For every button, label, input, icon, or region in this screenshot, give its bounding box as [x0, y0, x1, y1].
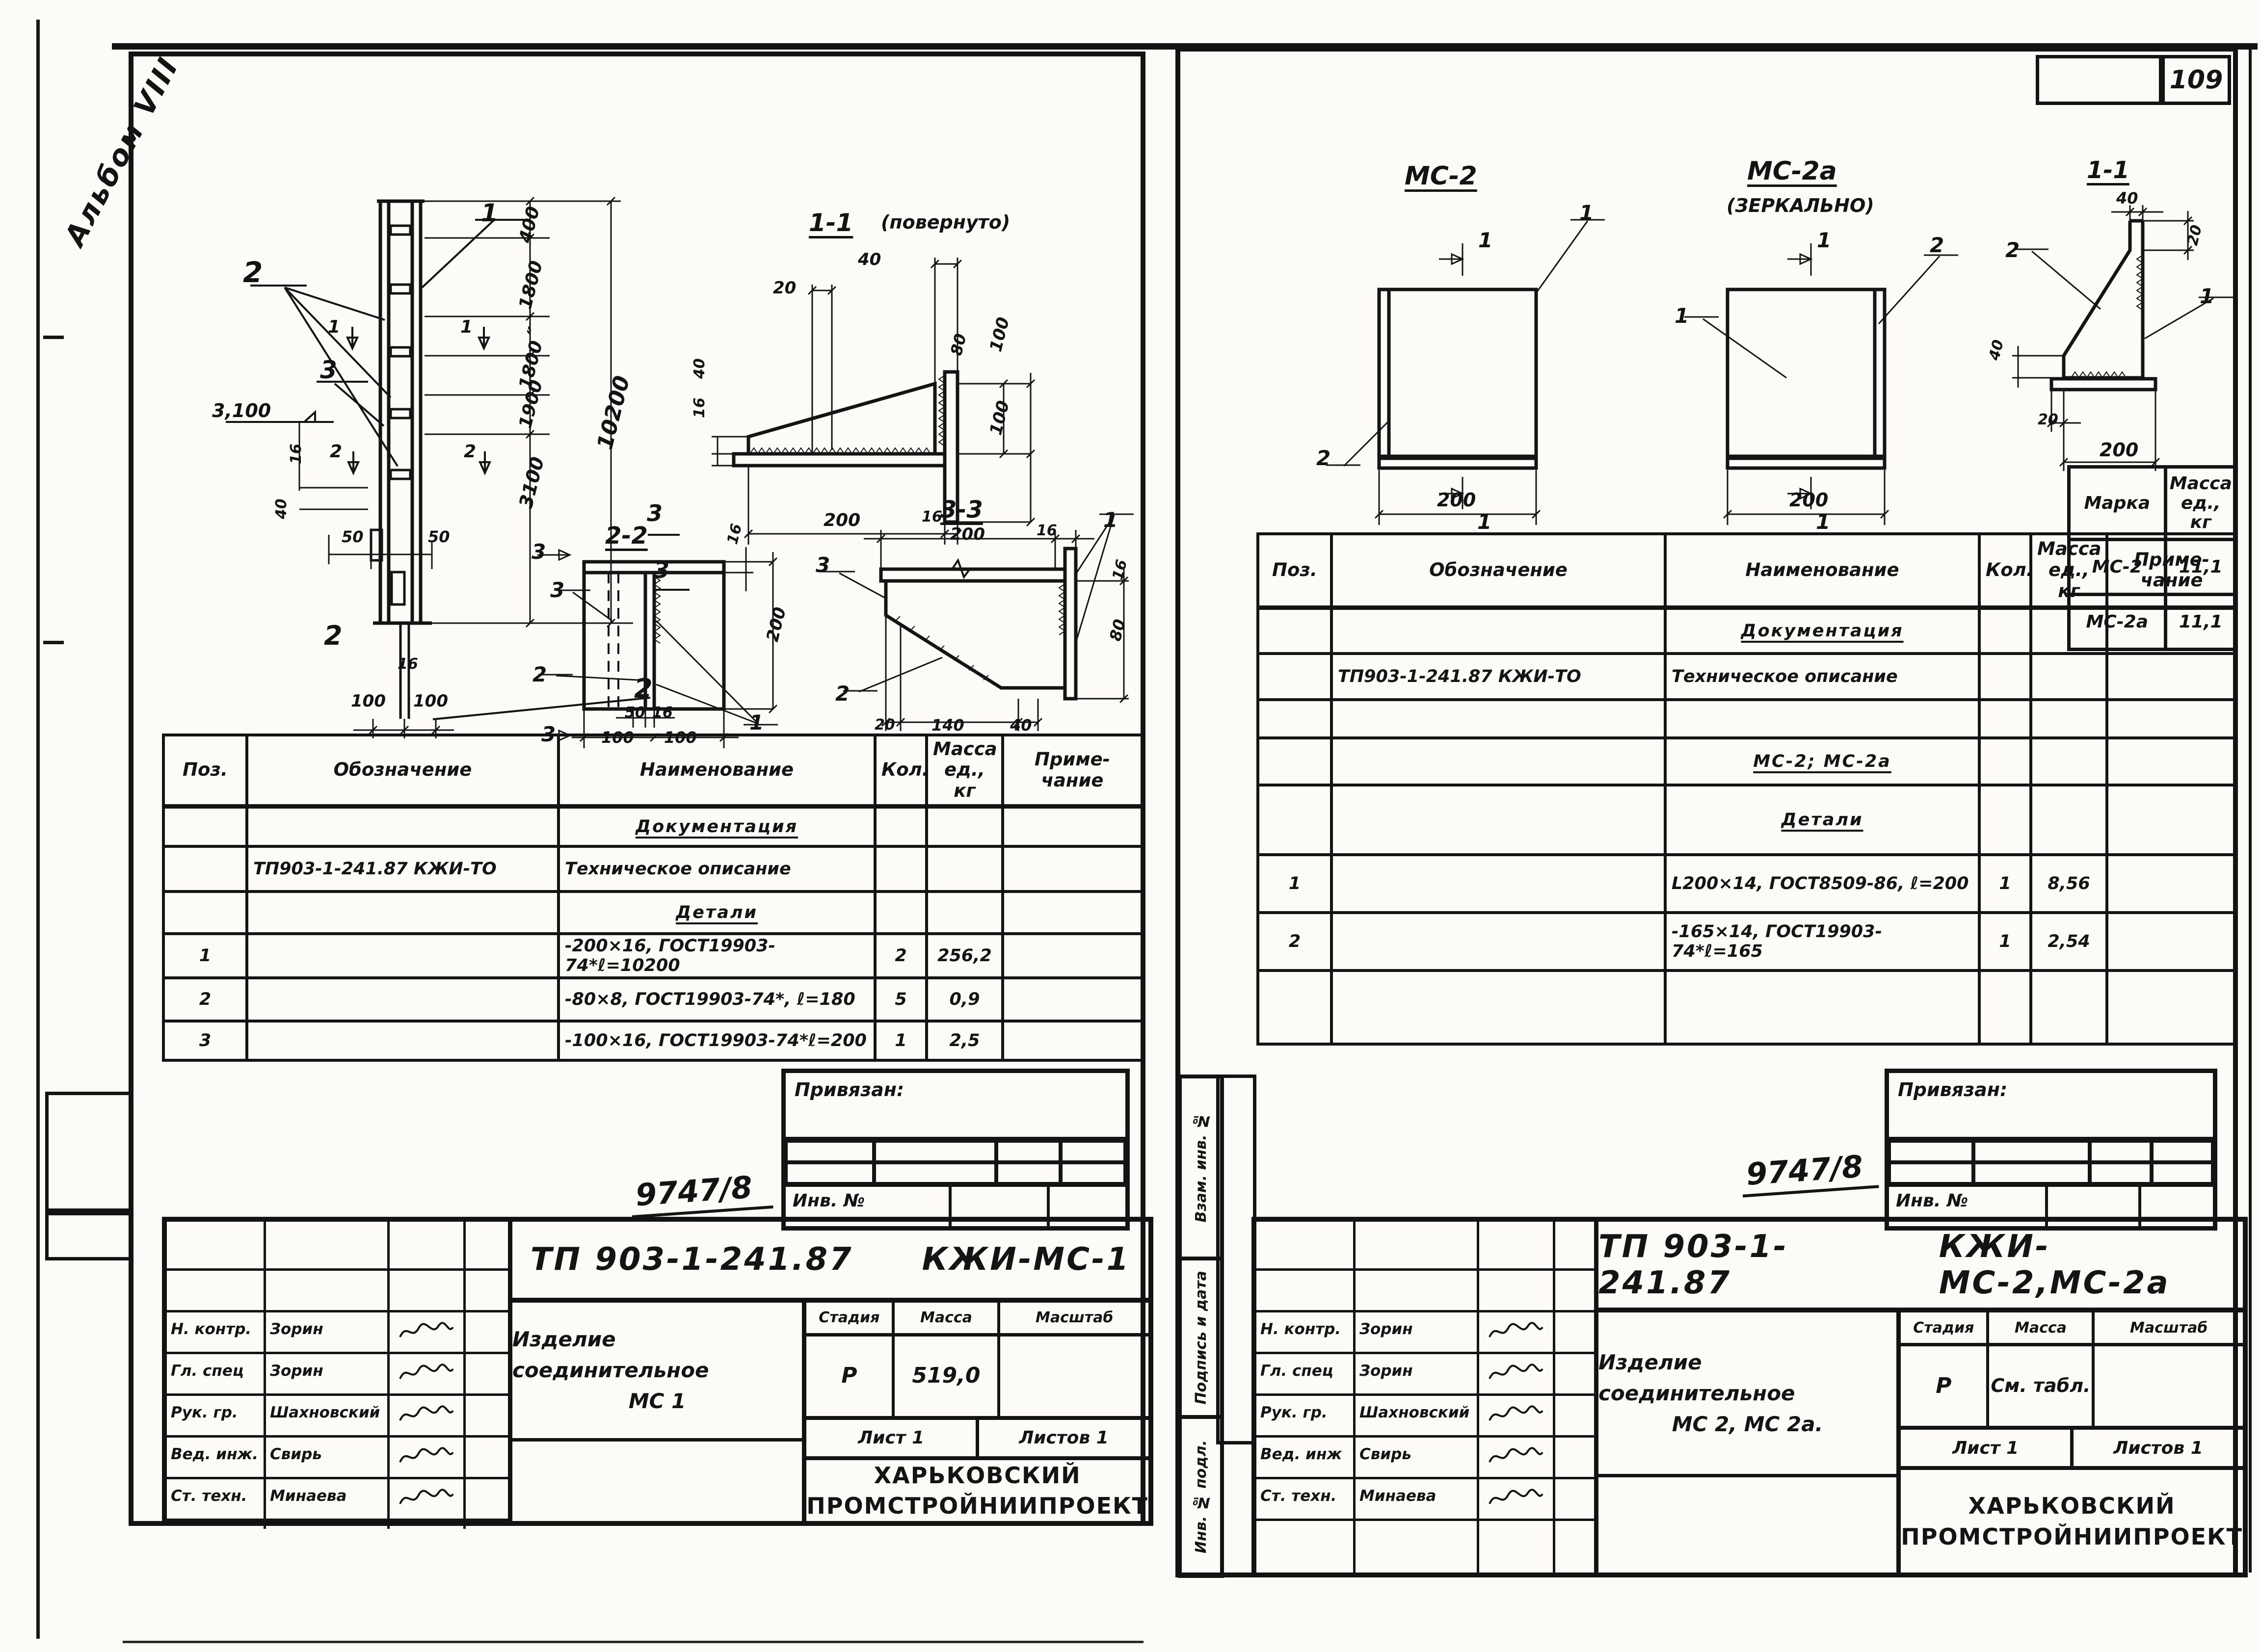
table-cell: Детали	[1665, 785, 1979, 855]
table-cell	[1003, 1021, 1142, 1060]
dim-label: 50	[428, 529, 450, 546]
staff-row: Н. контр.Зорин	[1256, 1312, 1594, 1354]
table-cell	[2107, 785, 2236, 855]
table-cell: 5	[875, 978, 927, 1021]
mass-value: См. табл.	[1989, 1346, 2095, 1426]
table-cell: 2	[875, 934, 927, 978]
binding-label: Привязан:	[786, 1073, 1125, 1141]
signature	[1487, 1321, 1545, 1343]
parts-table-left: Поз. Обозначение Наименование Кол. Масса…	[162, 734, 1144, 1062]
title-block-right: Н. контр.ЗоринГл. спецЗоринРук. гр.Шахно…	[1251, 1217, 2248, 1577]
stage-label: Стадия	[1901, 1312, 1989, 1343]
table-cell: 1	[1979, 913, 2031, 970]
table-cell	[1331, 700, 1665, 738]
table-cell: Техническое описание	[559, 846, 875, 892]
dim-label: 1	[749, 712, 764, 734]
dim-label: 3,100	[212, 401, 271, 421]
dim-label: 100	[351, 693, 386, 710]
table-cell	[1258, 785, 1331, 855]
table-cell: 2,5	[927, 1021, 1003, 1060]
dim-label: 3	[320, 357, 337, 383]
signature	[397, 1488, 456, 1510]
mass-value: 519,0	[895, 1337, 1000, 1416]
table-cell: 3	[163, 1021, 247, 1060]
title-block-left: Н. контр.ЗоринГл. спецЗоринРук. гр.Шахно…	[162, 1217, 1153, 1526]
staff-row: Рук. гр.Шахновский	[167, 1396, 508, 1438]
staff-row: Ст. техн.Минаева	[167, 1479, 508, 1521]
dim-label: 2	[2005, 239, 2020, 261]
staff-row	[167, 1222, 508, 1271]
signature	[1487, 1405, 1545, 1426]
stamp-vzam-inv: Взам. инв. №	[1193, 1112, 1210, 1222]
table-cell	[247, 978, 559, 1021]
table-cell: -100×16, ГОСТ19903-74*ℓ=200	[559, 1021, 875, 1060]
table-cell	[1258, 700, 1331, 738]
table-cell	[2107, 855, 2236, 913]
table-cell	[1665, 970, 1979, 1044]
scan-tick	[43, 336, 64, 339]
table-cell	[1258, 607, 1331, 654]
dim-label: 2	[835, 683, 850, 705]
dim-label: 1	[460, 318, 473, 337]
table-cell	[1003, 806, 1142, 846]
organization: ХАРЬКОВСКИЙ ПРОМСТРОЙНИИПРОЕКТ	[1901, 1470, 2243, 1573]
col-header-designation: Обозначение	[1331, 534, 1665, 607]
figure-ms2: МС-21122001	[1315, 147, 1620, 540]
staff-name: Зорин	[266, 1354, 390, 1393]
table-cell	[2107, 654, 2236, 700]
staff-row	[167, 1521, 508, 1529]
signature	[1487, 1446, 1545, 1468]
staff-role: Н. контр.	[1256, 1312, 1356, 1352]
dim-label: 16	[1037, 523, 1057, 539]
table-cell: МС-2; МС-2а	[1665, 738, 1979, 785]
table-cell	[875, 806, 927, 846]
signature	[1487, 1488, 1545, 1510]
dim-label: 3-3	[940, 498, 983, 522]
dim-label: 20	[2038, 412, 2058, 428]
mass-label: Масса	[1989, 1312, 2095, 1343]
figure-section-1-1-right: 1-14020214020200	[1983, 147, 2248, 520]
table-cell	[163, 806, 247, 846]
dim-label: 200	[950, 526, 985, 544]
table-cell	[1979, 738, 2031, 785]
table-cell	[1258, 970, 1331, 1044]
binding-box-right: Привязан: Инв. №	[1885, 1069, 2217, 1231]
staff-name: Шахновский	[266, 1396, 390, 1435]
table-cell	[2031, 607, 2107, 654]
dim-label: 2	[532, 664, 547, 685]
dim-label: 1-1	[809, 210, 853, 236]
signature	[397, 1363, 456, 1385]
col-header-mass: Масса ед., кг	[927, 735, 1003, 806]
stage-value: Р	[806, 1337, 895, 1416]
staff-name: Свирь	[266, 1438, 390, 1477]
col-header-mass: Масса ед., кг	[2031, 534, 2107, 607]
staff-role: Рук. гр.	[1256, 1396, 1356, 1435]
dim-label: 40	[692, 358, 708, 379]
table-cell	[163, 846, 247, 892]
dim-label: 2	[330, 443, 342, 461]
document-code: ТП 903-1-241.87КЖИ-МС-2,МС-2а	[1598, 1222, 2243, 1312]
table-cell	[875, 846, 927, 892]
staff-table: Н. контр.ЗоринГл. спецЗоринРук. гр.Шахно…	[167, 1222, 512, 1521]
dim-label: 1	[1579, 202, 1594, 224]
col-header-name: Наименование	[1665, 534, 1979, 607]
table-cell	[1331, 913, 1665, 970]
item-subject: Изделие соединительное МС 2, МС 2а.	[1598, 1312, 1896, 1477]
col-header-qty: Кол.	[875, 735, 927, 806]
table-cell: 2	[163, 978, 247, 1021]
table-cell: 1	[1979, 855, 2031, 913]
table-cell: Детали	[559, 892, 875, 934]
figure-section-3-3: 3-32001613168022014040	[790, 496, 1144, 746]
table-cell	[247, 1021, 559, 1060]
staff-table: Н. контр.ЗоринГл. спецЗоринРук. гр.Шахно…	[1256, 1222, 1598, 1573]
sheet-count: Листов 1	[979, 1420, 1148, 1456]
staff-role: Вед. инж	[1256, 1438, 1356, 1477]
table-cell	[1003, 934, 1142, 978]
signature	[1487, 1363, 1545, 1385]
table-cell: 8,56	[2031, 855, 2107, 913]
stage-value: Р	[1901, 1346, 1989, 1426]
scan-bottom-line	[123, 1641, 1144, 1643]
dim-label: 40	[274, 498, 290, 519]
table-cell	[1003, 978, 1142, 1021]
stage-label: Стадия	[806, 1303, 895, 1333]
table-cell	[2031, 654, 2107, 700]
table-cell	[247, 806, 559, 846]
table-cell	[1258, 738, 1331, 785]
staff-name: Зорин	[1356, 1354, 1479, 1393]
table-cell: L200×14, ГОСТ8509-86, ℓ=200	[1665, 855, 1979, 913]
sheet-number: Лист 1	[806, 1420, 979, 1456]
staff-row	[1256, 1521, 1594, 1573]
scale-value	[1000, 1337, 1148, 1416]
staff-name: Минаева	[266, 1479, 390, 1519]
binding-grid	[786, 1141, 1125, 1184]
staff-name: Зорин	[266, 1312, 390, 1352]
table-cell	[2107, 738, 2236, 785]
col-header-pos: Поз.	[163, 735, 247, 806]
figure-ms2a: МС-2а(ЗЕРКАЛЬНО)1122001	[1649, 147, 1973, 540]
col-header-name: Наименование	[559, 735, 875, 806]
table-cell	[247, 892, 559, 934]
dim-label: 16	[692, 397, 708, 418]
staff-role: Ст. техн.	[1256, 1479, 1356, 1519]
scale-value	[2095, 1346, 2243, 1426]
left-margin-box-2	[45, 1208, 133, 1260]
organization: ХАРЬКОВСКИЙ ПРОМСТРОЙНИИПРОЕКТ	[806, 1460, 1148, 1521]
binding-label: Привязан:	[1889, 1073, 2213, 1141]
staff-role: Гл. спец	[167, 1354, 266, 1393]
scale-label: Масштаб	[1000, 1303, 1148, 1333]
table-cell	[1331, 738, 1665, 785]
signature	[397, 1446, 456, 1468]
sheet-count: Листов 1	[2074, 1430, 2243, 1466]
dim-label: МС-2а	[1747, 158, 1837, 185]
scan-tick	[43, 641, 64, 644]
table-cell: 1	[1258, 855, 1331, 913]
sheet-number: Лист 1	[1901, 1430, 2074, 1466]
scale-label: Масштаб	[2095, 1312, 2243, 1343]
table-cell	[1331, 970, 1665, 1044]
table-cell	[2107, 970, 2236, 1044]
document-code: ТП 903-1-241.87КЖИ-МС-1	[512, 1222, 1148, 1303]
mass-label: Масса	[895, 1303, 1000, 1333]
table-cell: Документация	[559, 806, 875, 846]
dim-label: 1	[1477, 511, 1491, 533]
table-cell: -80×8, ГОСТ19903-74*, ℓ=180	[559, 978, 875, 1021]
dim-label: 2	[324, 622, 343, 650]
table-cell	[1331, 785, 1665, 855]
staff-name: Зорин	[1356, 1312, 1479, 1352]
table-cell	[927, 806, 1003, 846]
table-cell	[2031, 970, 2107, 1044]
dim-label: 200	[1437, 491, 1476, 510]
staff-name: Шахновский	[1356, 1396, 1479, 1435]
table-cell	[927, 846, 1003, 892]
dim-label: 16	[652, 705, 673, 721]
staff-row: Ст. техн.Минаева	[1256, 1479, 1594, 1521]
dim-label: 3	[550, 579, 564, 601]
table-cell: Документация	[1665, 607, 1979, 654]
dim-label: (повернуто)	[881, 213, 1010, 233]
staff-row: Н. контр.Зорин	[167, 1312, 508, 1354]
dim-label: 1	[1103, 509, 1117, 531]
binding-grid	[1889, 1141, 2213, 1184]
table-cell: 1	[875, 1021, 927, 1060]
staff-row: Рук. гр.Шахновский	[1256, 1396, 1594, 1438]
scanned-drawing-page: Альбом VIII 109	[0, 0, 2261, 1652]
dim-label: 1	[481, 200, 498, 226]
table-cell	[1331, 607, 1665, 654]
table-cell	[1979, 970, 2031, 1044]
dim-label: 3	[816, 554, 830, 576]
col-header-pos: Поз.	[1258, 534, 1331, 607]
dim-label: (ЗЕРКАЛЬНО)	[1727, 196, 1874, 216]
sheet-right-outer-edge	[2249, 47, 2252, 1573]
dim-label: 2-2	[605, 524, 648, 548]
col-header-designation: Обозначение	[247, 735, 559, 806]
dim-label: 3	[532, 541, 546, 563]
stamp-podpis-data: Подпись и дата	[1193, 1271, 1210, 1404]
dim-label: 200	[2100, 441, 2138, 460]
table-cell	[1979, 654, 2031, 700]
table-cell	[2031, 738, 2107, 785]
dim-label: 40	[2116, 190, 2138, 207]
dim-label: 2	[1930, 235, 1944, 256]
staff-row: Вед. инжСвирь	[1256, 1438, 1594, 1479]
staff-row: Вед. инж.Свирь	[167, 1438, 508, 1479]
mark-header: Марка	[2069, 467, 2166, 540]
signature	[397, 1405, 456, 1426]
table-cell	[2107, 607, 2236, 654]
col-header-note: Приме- чание	[1003, 735, 1142, 806]
staff-row	[1256, 1271, 1594, 1312]
dim-label: 200	[1789, 491, 1828, 510]
staff-role: Ст. техн.	[167, 1479, 266, 1519]
dim-label: 20	[875, 717, 895, 733]
table-cell	[875, 892, 927, 934]
signature	[397, 1321, 456, 1343]
dim-label: МС-2	[1405, 163, 1477, 190]
dim-label: 140	[931, 717, 964, 734]
staff-name: Минаева	[1356, 1479, 1479, 1519]
table-cell	[1003, 892, 1142, 934]
staff-role: Рук. гр.	[167, 1396, 266, 1435]
table-cell	[2031, 785, 2107, 855]
table-cell	[163, 892, 247, 934]
dim-label: 50	[342, 529, 364, 546]
table-cell	[1979, 785, 2031, 855]
table-cell	[2031, 700, 2107, 738]
side-strip-box	[1216, 1075, 1256, 1444]
staff-row: Гл. спецЗорин	[167, 1354, 508, 1396]
dim-label: 50	[625, 705, 645, 721]
staff-row: Гл. спецЗорин	[1256, 1354, 1594, 1396]
dim-label: 2	[1316, 447, 1330, 469]
table-cell	[1258, 654, 1331, 700]
table-cell: 1	[163, 934, 247, 978]
staff-role: Гл. спец	[1256, 1354, 1356, 1393]
dim-label: 1	[2200, 286, 2214, 307]
dim-label: 20	[773, 280, 796, 297]
dim-label: 100	[413, 693, 448, 710]
table-cell: ТП903-1-241.87 КЖИ-ТО	[1331, 654, 1665, 700]
staff-name: Свирь	[1356, 1438, 1479, 1477]
table-cell: Техническое описание	[1665, 654, 1979, 700]
dim-label: 1-1	[2087, 158, 2129, 183]
table-cell: 256,2	[927, 934, 1003, 978]
table-cell	[1979, 700, 2031, 738]
mark-mass-header: Масса ед., кг	[2165, 467, 2236, 540]
table-cell	[247, 934, 559, 978]
figure-section-2-2: 2-231620032150161001003	[528, 518, 812, 753]
table-cell	[1331, 855, 1665, 913]
table-cell: -165×14, ГОСТ19903-74*ℓ=165	[1665, 913, 1979, 970]
table-cell	[1003, 846, 1142, 892]
staff-row	[1256, 1222, 1594, 1271]
dim-label: 1	[1478, 230, 1492, 251]
staff-role: Вед. инж.	[167, 1438, 266, 1477]
dim-label: 1	[1817, 230, 1831, 251]
dim-label: 1	[328, 318, 340, 337]
binding-box-left: Привязан: Инв. №	[781, 1069, 1130, 1231]
dim-label: 40	[858, 251, 881, 269]
left-margin-box-1	[45, 1092, 133, 1215]
staff-row	[167, 1271, 508, 1312]
table-cell	[927, 892, 1003, 934]
table-cell: 2	[1258, 913, 1331, 970]
table-cell: 2,54	[2031, 913, 2107, 970]
table-cell	[1979, 607, 2031, 654]
dim-label: 2	[464, 443, 476, 461]
scan-left-edge	[36, 20, 40, 1639]
dim-label: 2	[243, 258, 263, 288]
table-cell	[2107, 700, 2236, 738]
table-cell: 0,9	[927, 978, 1003, 1021]
stamp-inv-podl: Инв. № подл.	[1193, 1440, 1210, 1553]
dim-label: 40	[1010, 717, 1032, 734]
dim-label: 16	[398, 656, 418, 672]
table-cell	[1665, 700, 1979, 738]
col-header-qty: Кол.	[1979, 534, 2031, 607]
dim-label: 1	[1816, 511, 1830, 533]
dim-label: 16	[289, 444, 304, 464]
item-subject: Изделие соединительное МС 1	[512, 1303, 802, 1442]
dim-label: 1	[1675, 305, 1689, 327]
table-cell: -200×16, ГОСТ19903-74*ℓ=10200	[559, 934, 875, 978]
table-cell: ТП903-1-241.87 КЖИ-ТО	[247, 846, 559, 892]
col-header-note: Приме- чание	[2107, 534, 2236, 607]
staff-role: Н. контр.	[167, 1312, 266, 1352]
parts-table-right: Поз. Обозначение Наименование Кол. Масса…	[1256, 532, 2238, 1046]
table-cell	[2107, 913, 2236, 970]
